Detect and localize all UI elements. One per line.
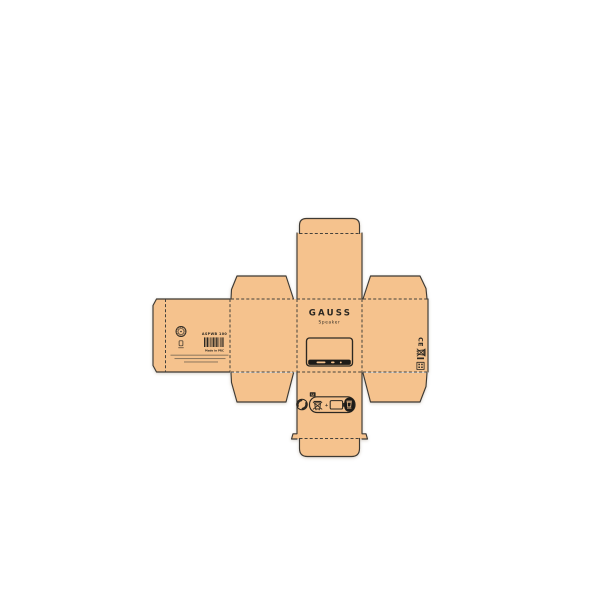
brand-wordmark: GAUSS <box>309 309 352 319</box>
origin-label: Made in PRC <box>205 349 224 353</box>
ce-mark: CE <box>416 337 424 347</box>
top-lid-panel <box>297 233 362 299</box>
sku-label: ASPWB 100 <box>202 332 228 336</box>
product-type-label: Speaker <box>319 320 341 325</box>
bottom-dust-flap-right <box>363 373 427 402</box>
top-dust-flap-left <box>231 276 294 299</box>
packaging-dieline-page: GAUSS Speaker ASPWB 100 <box>0 0 600 600</box>
battery-directive-black-icon <box>344 398 354 412</box>
box-dieline: GAUSS Speaker ASPWB 100 <box>153 219 428 457</box>
battery-chemistry-label: Li <box>311 393 314 397</box>
top-tuck-flap <box>300 219 360 234</box>
plus-label: + <box>325 403 329 409</box>
top-dust-flap-right <box>363 276 427 299</box>
barcode-icon <box>204 337 224 347</box>
bottom-tuck-flap <box>300 439 360 457</box>
dieline-svg: GAUSS Speaker ASPWB 100 <box>0 0 600 600</box>
left-side-panel <box>230 299 297 372</box>
board-panels <box>153 219 428 457</box>
bottom-dust-flap-left <box>231 373 294 402</box>
display-control-bar <box>308 360 351 365</box>
glue-flap <box>153 299 166 372</box>
right-side-panel <box>362 299 428 372</box>
weee-bin-icon <box>417 349 426 356</box>
collection-bar-icon <box>417 358 424 360</box>
